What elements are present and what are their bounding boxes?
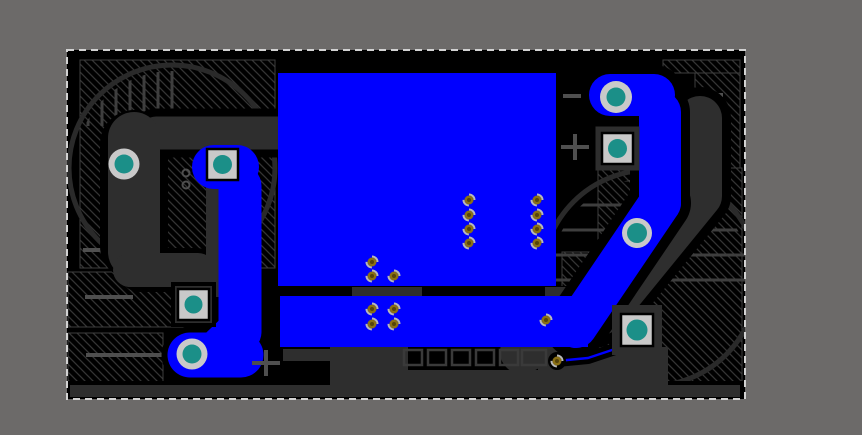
zone-bottom-left-lower[interactable] (68, 333, 163, 386)
silk-minus-marker (563, 94, 581, 98)
pcb-viewport[interactable] (0, 0, 862, 435)
pcb-canvas[interactable] (0, 0, 862, 435)
via[interactable] (548, 352, 566, 370)
through-hole-pad-square[interactable] (207, 149, 238, 180)
through-hole-pad-round[interactable] (622, 218, 652, 248)
through-hole-pad-square[interactable] (171, 282, 216, 327)
back-band-segment-a[interactable] (352, 287, 422, 296)
through-hole-pad-round[interactable] (600, 81, 632, 113)
front-pour-main[interactable] (278, 73, 556, 286)
back-trace-bottom-stub[interactable] (283, 349, 343, 361)
through-hole-pad-round[interactable] (109, 149, 140, 180)
back-pour-edge-strip[interactable] (70, 385, 740, 397)
zone-top-right-strip[interactable] (663, 60, 740, 73)
back-strip-left[interactable] (206, 175, 219, 297)
through-hole-pad-square[interactable] (612, 305, 662, 355)
through-hole-pad-square[interactable] (596, 127, 640, 171)
through-hole-pad-round[interactable] (177, 339, 208, 370)
